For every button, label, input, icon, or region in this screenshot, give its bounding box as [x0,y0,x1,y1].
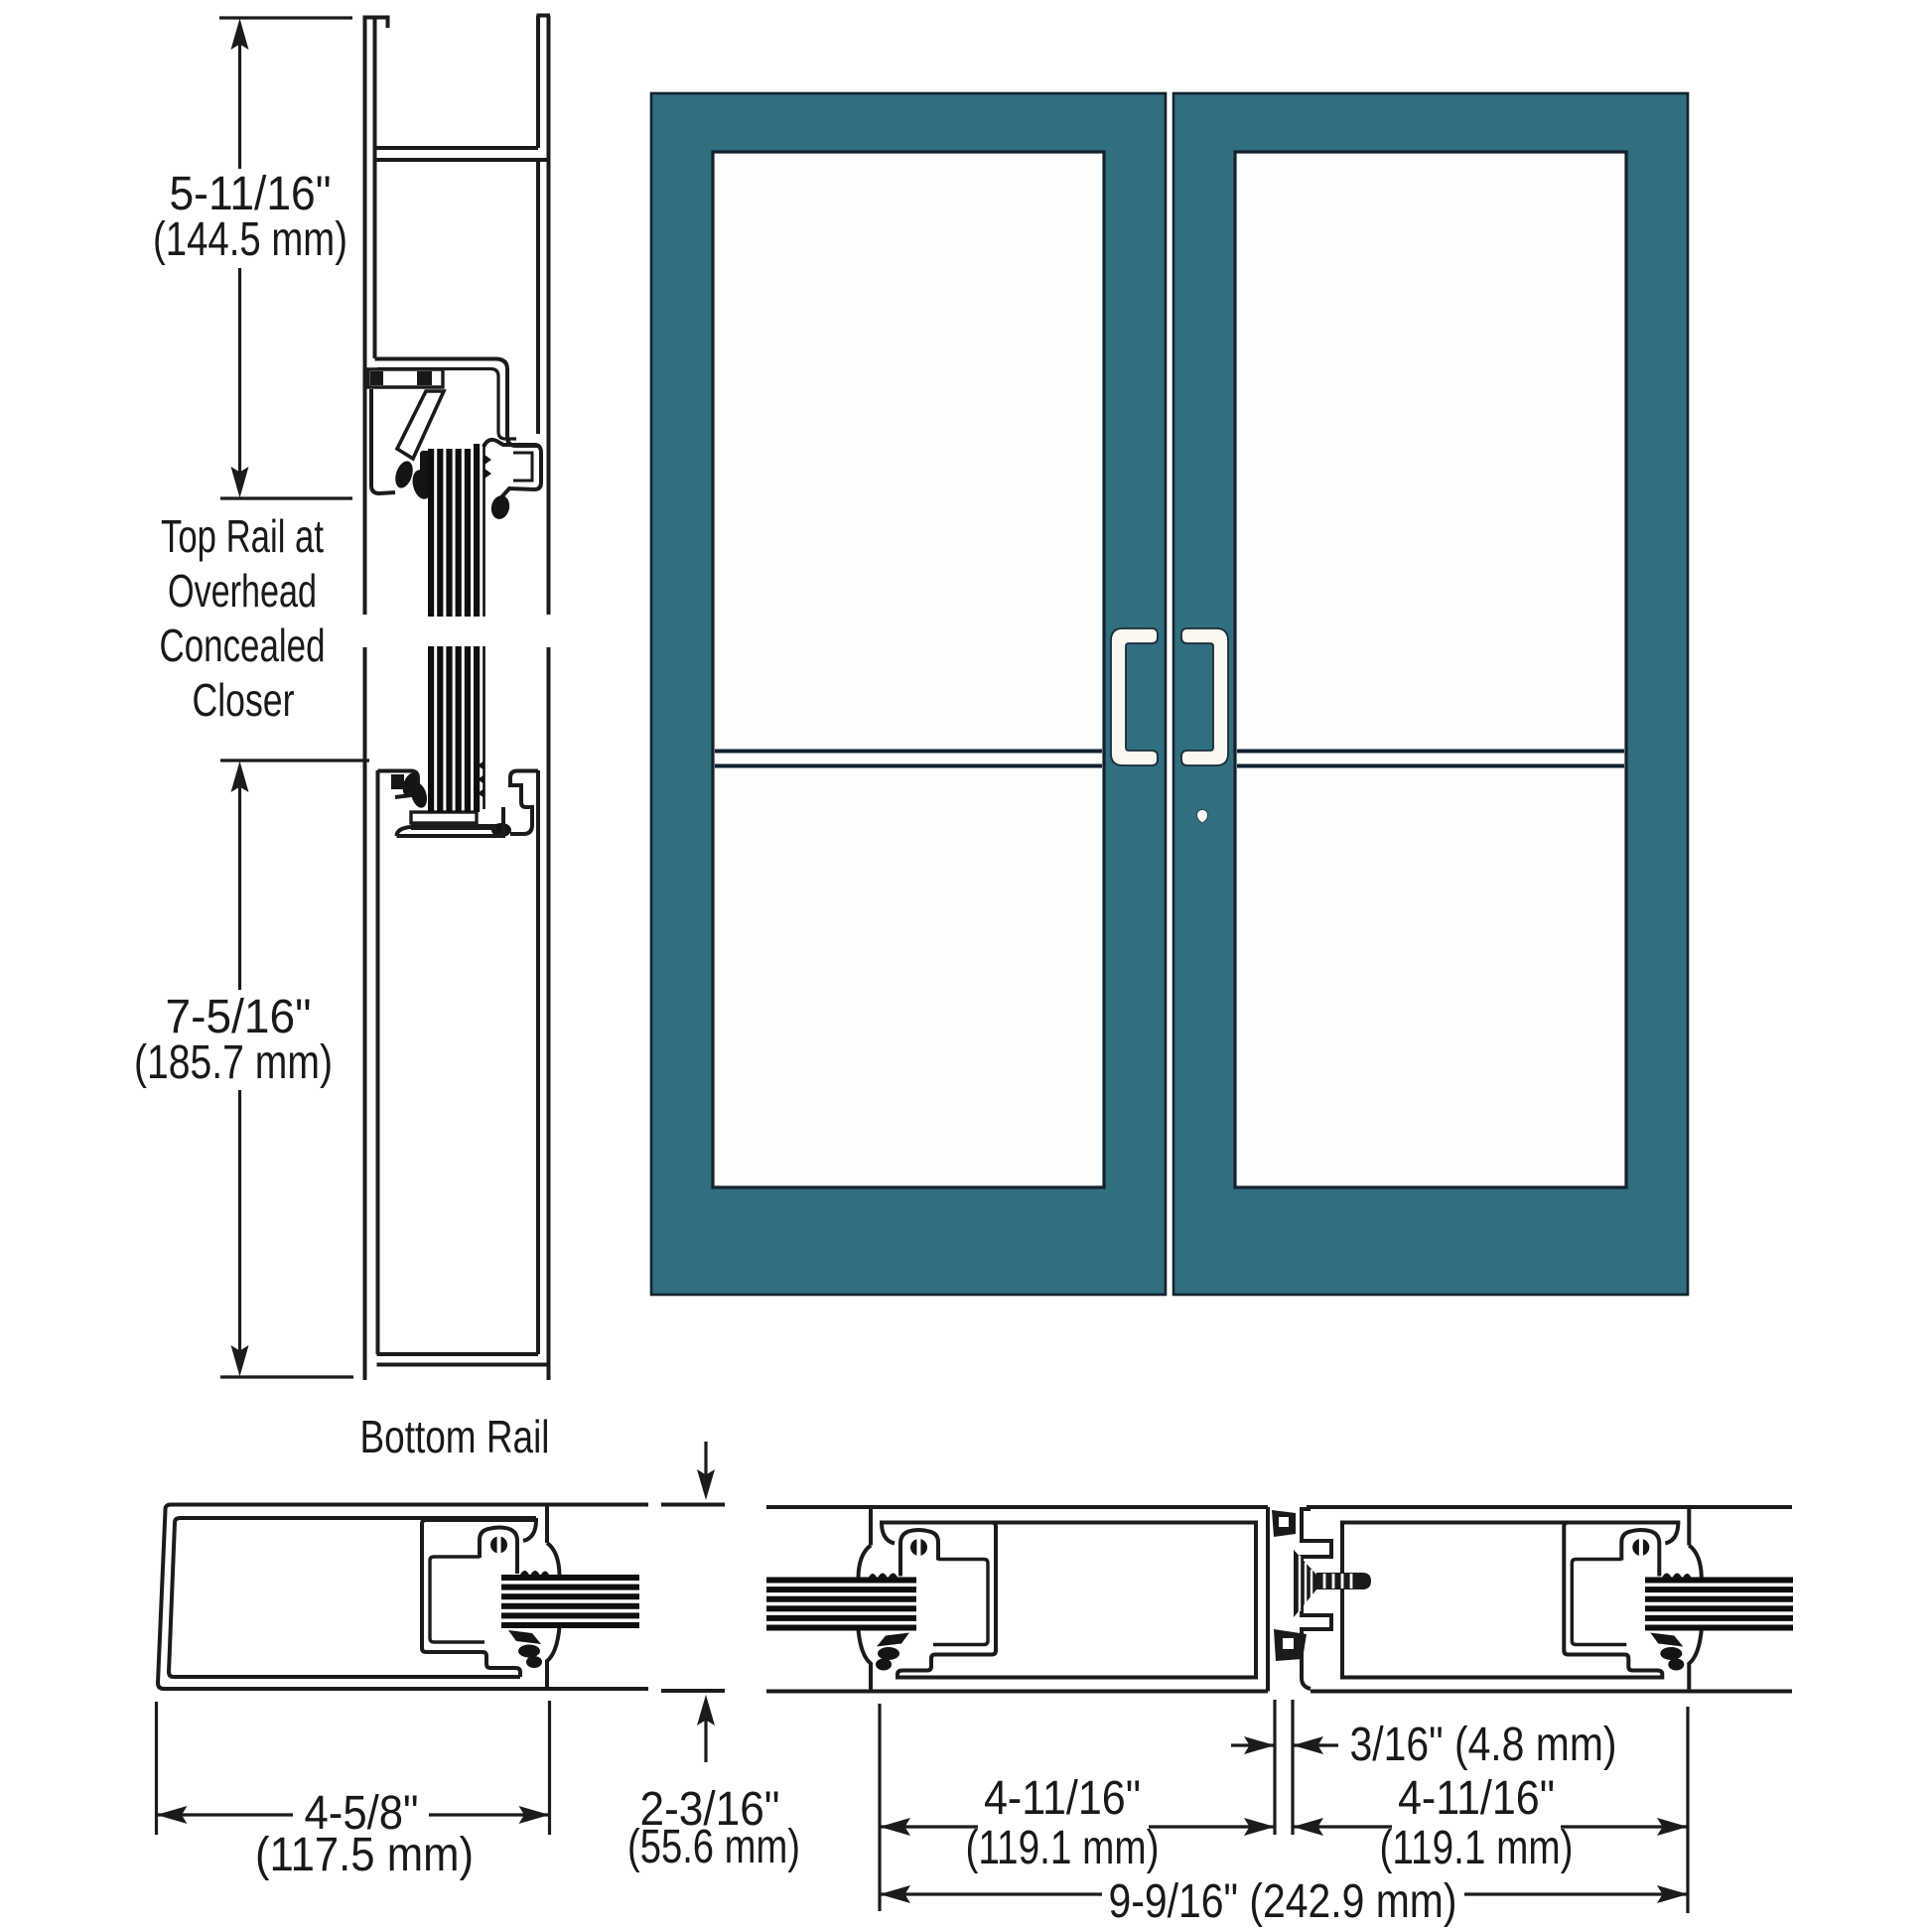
svg-text:(55.6 mm): (55.6 mm) [627,1821,800,1873]
svg-text:(185.7 mm): (185.7 mm) [134,1036,333,1089]
svg-text:Closer: Closer [193,674,295,726]
svg-text:Top Rail at: Top Rail at [161,510,324,562]
svg-text:(117.5 mm): (117.5 mm) [255,1829,474,1881]
svg-text:4-11/16": 4-11/16" [1398,1772,1555,1825]
svg-text:Overhead: Overhead [168,565,317,617]
svg-text:4-11/16": 4-11/16" [984,1772,1141,1825]
svg-text:(119.1 mm): (119.1 mm) [966,1822,1160,1874]
svg-text:Bottom Rail: Bottom Rail [360,1411,550,1462]
svg-text:9-9/16" (242.9 mm): 9-9/16" (242.9 mm) [1109,1875,1457,1928]
svg-text:(119.1 mm): (119.1 mm) [1380,1822,1574,1874]
svg-text:Concealed: Concealed [160,620,326,671]
svg-text:3/16" (4.8 mm): 3/16" (4.8 mm) [1350,1719,1617,1771]
svg-text:(144.5 mm): (144.5 mm) [153,213,347,266]
